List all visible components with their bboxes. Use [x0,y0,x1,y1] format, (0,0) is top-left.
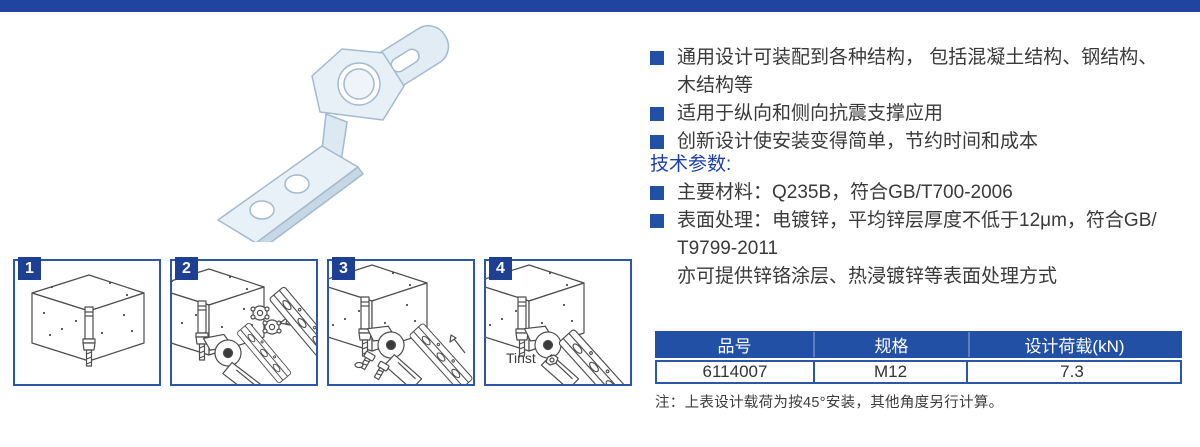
product-image [150,14,450,242]
seismic-bracket-illustration [150,14,450,242]
table-header-row: 品号 规格 设计荷载(kN) [655,331,1182,358]
feature-text: 适用于纵向和侧向抗震支撑应用 [677,103,943,124]
step-panel-4: 4 Tinst [484,259,632,386]
table-cell-spec: M12 [813,362,966,382]
tech-param-text-continued: 亦可提供锌铬涂层、热浸镀锌等表面处理方式 [650,263,1198,291]
bullet-square-icon [650,214,664,228]
table-row: 6114007 M12 7.3 [655,360,1182,384]
tech-params-list: 主要材料：Q235B，符合GB/T700-2006 表面处理：电镀锌，平均锌层厚… [650,179,1198,291]
bullet-square-icon [650,135,664,149]
step-panel-1: 1 [13,259,161,386]
table-cell-part-no: 6114007 [657,362,813,382]
feature-text-continued: 木结构等 [650,72,1198,100]
step-panel-2: 2 [170,259,318,386]
tinst-label: Tinst [506,350,536,366]
feature-item: 创新设计使安装变得简单，节约时间和成本 [650,128,1198,156]
feature-item: 适用于纵向和侧向抗震支撑应用 [650,100,1198,128]
product-info-column: 通用设计可装配到各种结构， 包括混凝土结构、钢结构、 木结构等 适用于纵向和侧向… [650,0,1198,447]
feature-text: 通用设计可装配到各种结构， 包括混凝土结构、钢结构、 [677,47,1157,68]
feature-list: 通用设计可装配到各种结构， 包括混凝土结构、钢结构、 木结构等 适用于纵向和侧向… [650,44,1198,156]
nut-icon [546,355,558,365]
step-panel-3: 3 [327,259,475,386]
step-number-badge: 3 [332,257,355,280]
product-table: 品号 规格 设计荷载(kN) 6114007 M12 7.3 [655,331,1182,384]
bullet-square-icon [650,186,664,200]
table-footnote: 注：上表设计载荷为按45°安装，其他角度另行计算。 [655,391,1003,412]
table-header-part-no: 品号 [656,332,813,357]
feature-text: 创新设计使安装变得简单，节约时间和成本 [677,131,1038,152]
tech-param-text: 主要材料：Q235B，符合GB/T700-2006 [677,182,1013,203]
tech-params-heading: 技术参数: [650,152,731,178]
tech-param-text: 表面处理：电镀锌，平均锌层厚度不低于12μm，符合GB/ [677,210,1157,231]
feature-item: 通用设计可装配到各种结构， 包括混凝土结构、钢结构、 [650,44,1198,72]
table-cell-design-load: 7.3 [966,362,1176,382]
table-header-design-load: 设计荷载(kN) [968,332,1179,357]
step-number-badge: 4 [489,257,512,280]
installation-steps: 1 2 3 [13,259,632,386]
tech-param-item: 主要材料：Q235B，符合GB/T700-2006 [650,179,1198,207]
tech-param-text-continued: T9799-2011 [650,235,1198,263]
bullet-square-icon [650,51,664,65]
tech-param-item: 表面处理：电镀锌，平均锌层厚度不低于12μm，符合GB/ [650,207,1198,235]
step-number-badge: 2 [175,257,198,280]
table-header-spec: 规格 [813,332,968,357]
step-number-badge: 1 [18,257,41,280]
bullet-square-icon [650,107,664,121]
